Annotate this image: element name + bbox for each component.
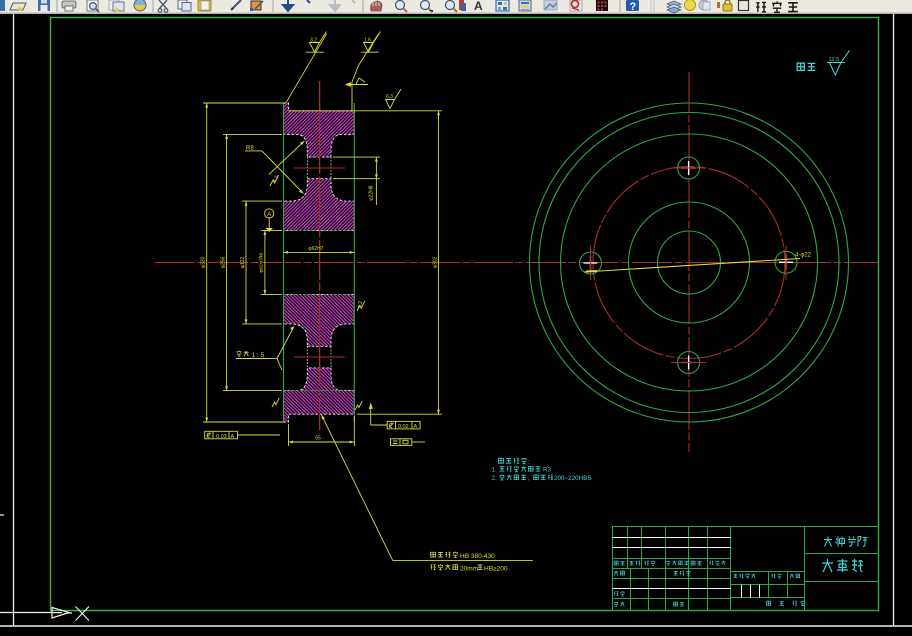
svg-text:6.3: 6.3 [386, 94, 393, 100]
svg-text:φ122: φ122 [240, 256, 246, 268]
svg-text:φ256: φ256 [220, 256, 226, 268]
svg-text:1 : 5: 1 : 5 [252, 352, 265, 359]
svg-text:65: 65 [315, 436, 321, 442]
svg-text:3.2: 3.2 [310, 38, 317, 44]
svg-text:R8: R8 [246, 146, 254, 152]
svg-text:A: A [231, 434, 235, 440]
svg-text:12.5: 12.5 [829, 57, 840, 63]
svg-text:0.02: 0.02 [398, 424, 409, 430]
svg-text:?: ? [630, 1, 637, 13]
svg-text:1.: 1. [492, 467, 498, 474]
svg-text:3.2: 3.2 [358, 301, 364, 308]
svg-text:φ62H7/k6: φ62H7/k6 [259, 252, 264, 273]
svg-text:A: A [414, 424, 418, 430]
svg-text:HB≥200: HB≥200 [484, 566, 508, 573]
svg-text:20mm: 20mm [460, 566, 478, 573]
svg-text::: : [528, 459, 530, 466]
svg-text:φ302: φ302 [432, 256, 438, 268]
svg-text:2.: 2. [492, 475, 498, 482]
svg-text:HB 380-430: HB 380-430 [460, 553, 495, 560]
svg-text:1.6: 1.6 [364, 38, 371, 44]
svg-text:A: A [267, 212, 271, 218]
svg-text:0.03: 0.03 [216, 434, 227, 440]
svg-text:φ320: φ320 [201, 256, 207, 268]
svg-text:A: A [474, 0, 483, 13]
svg-text:R3: R3 [543, 467, 552, 474]
svg-text:φ62H7: φ62H7 [308, 246, 323, 252]
svg-text:4-φ22: 4-φ22 [795, 253, 812, 259]
svg-text:,: , [528, 475, 530, 482]
svg-text:φ22H8: φ22H8 [369, 185, 375, 200]
svg-text:200~220HBS: 200~220HBS [554, 475, 592, 482]
